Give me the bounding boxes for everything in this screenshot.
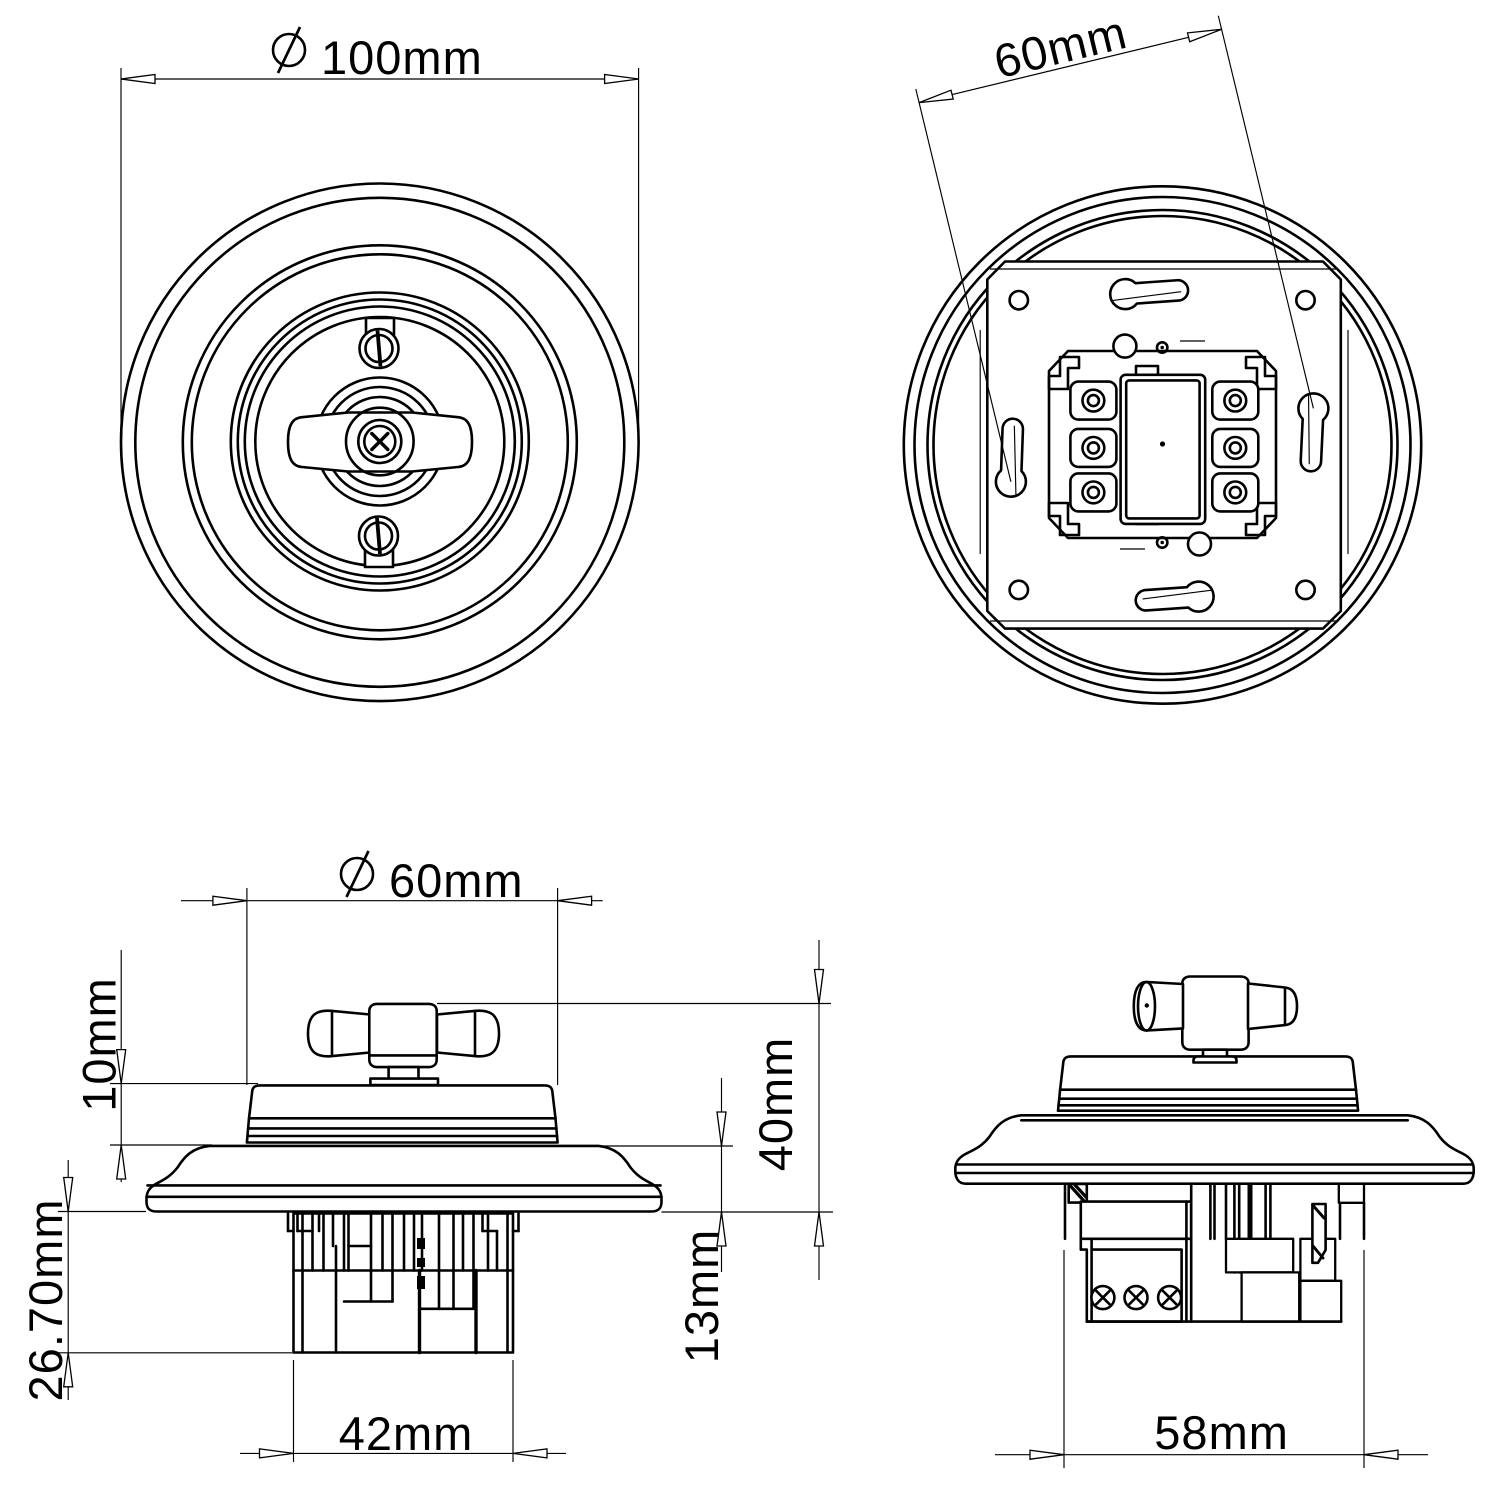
svg-text:13mm: 13mm bbox=[675, 1229, 728, 1364]
svg-text:10mm: 10mm bbox=[73, 977, 126, 1112]
svg-text:58mm: 58mm bbox=[1154, 1406, 1289, 1459]
svg-text:100mm: 100mm bbox=[321, 31, 483, 84]
svg-text:42mm: 42mm bbox=[339, 1407, 474, 1460]
svg-text:40mm: 40mm bbox=[749, 1037, 802, 1172]
svg-text:26.70mm: 26.70mm bbox=[19, 1199, 72, 1402]
svg-text:60mm: 60mm bbox=[389, 854, 524, 907]
